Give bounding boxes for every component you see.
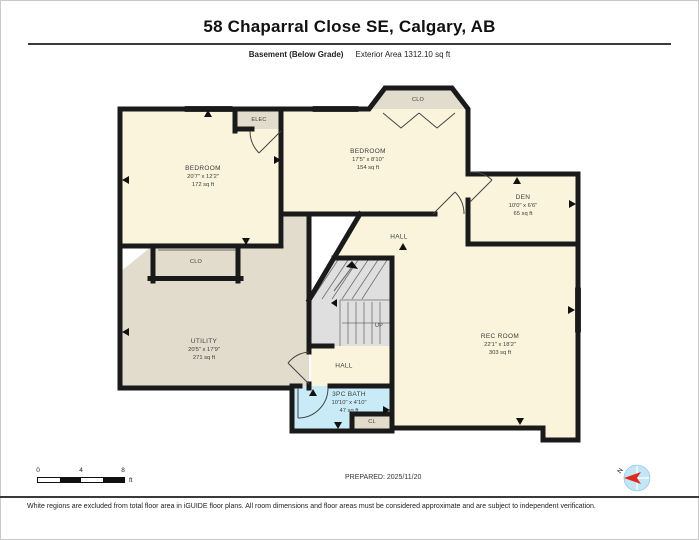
scale-tick-8: 8: [121, 467, 125, 474]
compass-north-label: N: [616, 467, 625, 475]
prepared-date: PREPARED: 2025/11/20: [345, 474, 421, 481]
compass: N: [616, 465, 650, 491]
room-label-den: DEN 10'0" x 6'6" 65 sq ft: [509, 194, 538, 218]
floorplan-page: { "title": "58 Chaparral Close SE, Calga…: [0, 0, 699, 540]
room-label-hall-lower: HALL: [335, 363, 352, 372]
label-stairs-up: UP: [375, 323, 383, 329]
label-closet-bay: CLO: [412, 97, 424, 103]
floor-plan-drawing: N: [0, 0, 699, 540]
scale-unit-label: ft: [129, 477, 133, 484]
room-label-utility: UTILITY 20'5" x 17'9" 271 sq ft: [188, 338, 220, 362]
footer-divider: [0, 496, 699, 498]
scale-tick-0: 0: [36, 467, 40, 474]
label-elec-closet: ELEC: [251, 117, 266, 123]
scale-tick-4: 4: [79, 467, 83, 474]
footer-disclaimer: White regions are excluded from total fl…: [27, 503, 677, 510]
room-label-bath: 3PC BATH 10'10" x 4'10" 47 sq ft: [331, 391, 366, 415]
scale-bar: [37, 477, 125, 483]
room-label-hall-upper: HALL: [390, 234, 407, 243]
room-label-rec-room: REC ROOM 22'1" x 18'2" 303 sq ft: [481, 333, 519, 357]
label-closet-bedroom: CLO: [190, 259, 202, 265]
room-label-bedroom-2: BEDROOM 17'5" x 8'10" 154 sq ft: [350, 148, 386, 172]
label-closet-bath: CL: [368, 419, 375, 425]
room-label-bedroom-1: BEDROOM 20'7" x 12'2" 172 sq ft: [185, 165, 221, 189]
